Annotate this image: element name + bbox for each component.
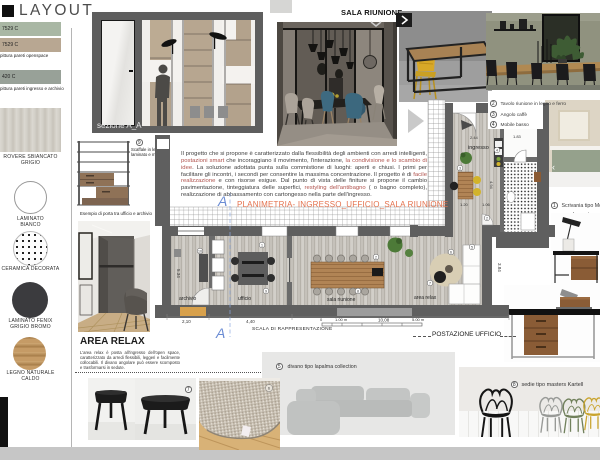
svg-text:2: 2 [486, 216, 488, 220]
svg-text:5.00 m: 5.00 m [412, 317, 425, 322]
svg-text:2.44: 2.44 [470, 135, 479, 140]
svg-text:7: 7 [429, 281, 431, 285]
svg-text:SCALA DI RAPPRESENTAZIONE: SCALA DI RAPPRESENTAZIONE [252, 326, 332, 332]
svg-text:2: 2 [375, 255, 377, 259]
svg-text:6: 6 [450, 250, 452, 254]
svg-text:8: 8 [357, 289, 359, 293]
svg-text:A: A [215, 325, 225, 341]
svg-text:ufficio: ufficio [238, 296, 251, 302]
svg-text:1.20: 1.20 [460, 202, 469, 207]
svg-text:archivio: archivio [179, 296, 196, 302]
svg-text:4.94: 4.94 [489, 181, 494, 190]
svg-text:10: 10 [198, 249, 202, 253]
svg-text:A: A [217, 193, 227, 209]
svg-text:2,10: 2,10 [182, 319, 191, 324]
svg-text:area relax: area relax [414, 295, 437, 301]
svg-text:3: 3 [459, 166, 461, 170]
svg-text:1.83: 1.83 [513, 134, 522, 139]
svg-text:5: 5 [471, 245, 473, 249]
svg-text:1.06: 1.06 [482, 202, 491, 207]
svg-text:3.84: 3.84 [497, 263, 502, 272]
svg-text:4: 4 [496, 148, 498, 152]
svg-text:4,40: 4,40 [246, 319, 255, 324]
svg-text:sala riunione: sala riunione [327, 297, 356, 303]
svg-text:1: 1 [261, 243, 263, 247]
svg-text:1.00 m: 1.00 m [335, 317, 348, 322]
svg-text:ingresso: ingresso [468, 145, 489, 151]
svg-text:9: 9 [265, 289, 267, 293]
svg-text:10,08: 10,08 [378, 318, 390, 323]
svg-text:5.34: 5.34 [176, 269, 181, 278]
